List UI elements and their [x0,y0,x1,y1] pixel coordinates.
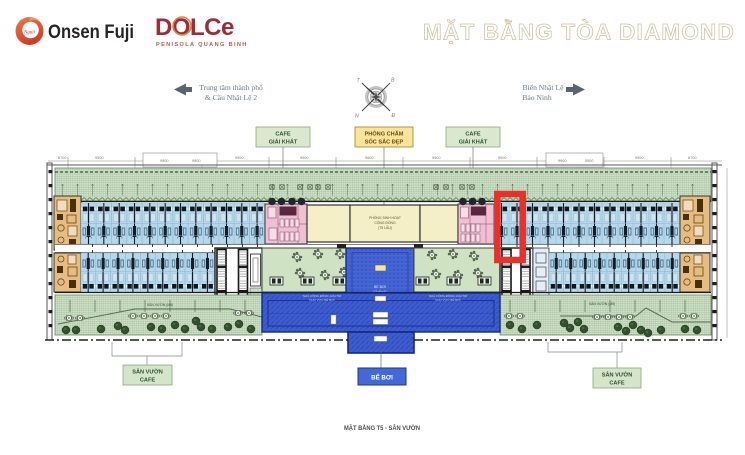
svg-text:9900: 9900 [558,159,566,163]
svg-text:PENISOLA QUANG BINH: PENISOLA QUANG BINH [156,42,248,48]
svg-text:B: B [391,78,395,84]
svg-text:6700: 6700 [688,156,696,160]
svg-text:CAFE: CAFE [140,378,155,384]
svg-text:Trung tâm thành phố: Trung tâm thành phố [199,83,263,92]
svg-text:(T5 LẦU): (T5 LẦU) [378,226,392,230]
svg-text:GIẢI KHÁT: GIẢI KHÁT [269,139,298,146]
svg-text:MẶT BẰNG T5 - SÂN VƯỜN: MẶT BẰNG T5 - SÂN VƯỜN [344,423,420,432]
svg-text:9900: 9900 [498,156,506,160]
svg-text:Biển Nhật Lệ: Biển Nhật Lệ [523,83,565,92]
svg-text:9900: 9900 [192,159,200,163]
svg-text:Nguii: Nguii [23,31,36,36]
svg-text:KHU VỰC BỂ BƠI: KHU VỰC BỂ BƠI [436,297,461,302]
svg-text:KHU VỰC BỂ BƠI: KHU VỰC BỂ BƠI [310,297,335,302]
svg-text:Bảo Ninh: Bảo Ninh [522,93,552,102]
svg-text:Đ: Đ [392,113,396,119]
svg-text:CAFE: CAFE [609,381,624,387]
svg-text:SÂN VƯỜN: SÂN VƯỜN [602,371,633,379]
svg-text:PHÒNG CHĂM: PHÒNG CHĂM [365,130,404,138]
svg-text:9900: 9900 [635,156,643,160]
svg-text:PHÒNG SINH HOẠT: PHÒNG SINH HOẠT [369,215,401,220]
svg-text:CAFE: CAFE [465,132,480,138]
svg-text:9900: 9900 [160,159,168,163]
svg-text:5500: 5500 [585,159,593,163]
svg-text:9900: 9900 [432,156,440,160]
svg-text:9600: 9600 [365,156,373,160]
svg-text:& Cầu Nhật Lệ 2: & Cầu Nhật Lệ 2 [205,93,258,102]
svg-text:Onsen Fuji: Onsen Fuji [48,21,134,43]
svg-text:9900: 9900 [300,156,308,160]
svg-text:SÂN VƯỜN (M5): SÂN VƯỜN (M5) [589,301,615,306]
svg-text:DOLCe: DOLCe [155,14,234,41]
svg-text:GIẢI KHÁT: GIẢI KHÁT [459,139,488,146]
svg-text:SÂN VƯỜN (M5): SÂN VƯỜN (M5) [147,302,173,307]
svg-text:SÓC SẮC ĐẸP: SÓC SẮC ĐẸP [365,138,404,146]
svg-text:CỘNG ĐỒNG: CỘNG ĐỒNG [374,220,396,225]
svg-text:BỂ BƠI: BỂ BƠI [374,284,386,289]
svg-text:9900: 9900 [95,156,103,160]
svg-text:BỂ BƠI: BỂ BƠI [371,375,393,382]
svg-text:6700: 6700 [58,156,66,160]
svg-text:N: N [355,114,359,120]
svg-text:CAFE: CAFE [275,132,290,138]
svg-text:MẶT BẰNG TÒA DIAMOND: MẶT BẰNG TÒA DIAMOND [423,20,735,45]
svg-text:9900: 9900 [235,156,243,160]
svg-text:SÂN VƯỜN: SÂN VƯỜN [132,368,163,376]
